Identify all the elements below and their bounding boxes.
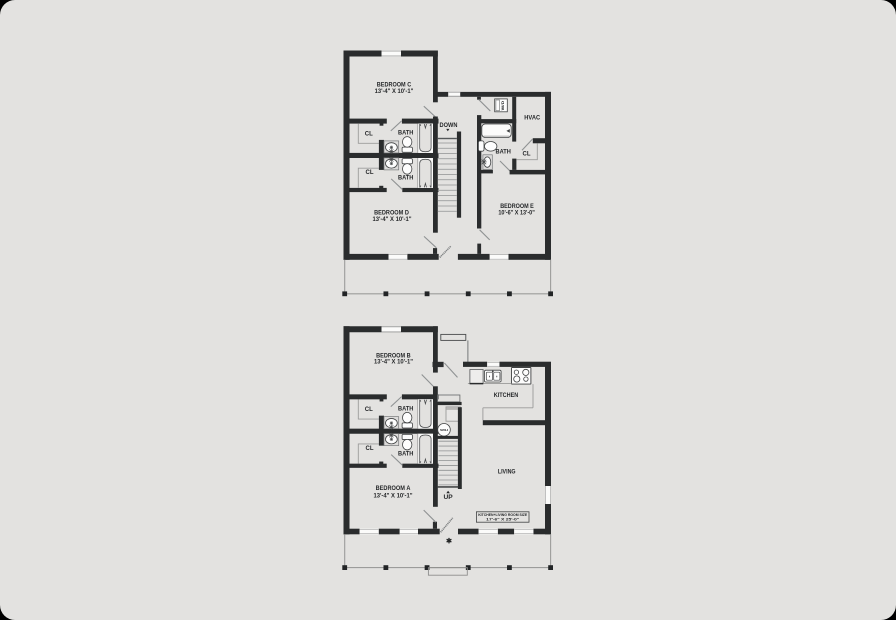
svg-text:BATH: BATH: [398, 131, 413, 137]
svg-text:KITCHEN: KITCHEN: [494, 392, 519, 399]
svg-text:BEDROOM A: BEDROOM A: [376, 485, 411, 492]
svg-text:HVAC: HVAC: [524, 116, 540, 122]
svg-text:BATH: BATH: [398, 176, 413, 182]
svg-text:CL: CL: [366, 446, 374, 452]
svg-text:10'-6" X 13'-0": 10'-6" X 13'-0": [498, 209, 535, 216]
svg-text:UP: UP: [444, 495, 453, 501]
svg-text:CL: CL: [365, 407, 373, 413]
svg-text:LIVING: LIVING: [498, 468, 516, 475]
svg-text:CL: CL: [523, 151, 531, 157]
svg-text:CL: CL: [365, 131, 373, 137]
svg-text:W/H: W/H: [440, 428, 449, 432]
svg-text:BATH: BATH: [398, 406, 413, 412]
svg-text:CL: CL: [366, 170, 374, 176]
svg-text:KITCHEN+LIVING ROOM SIZE: KITCHEN+LIVING ROOM SIZE: [478, 513, 528, 517]
svg-text:BATH: BATH: [496, 150, 511, 156]
svg-text:W/D: W/D: [501, 101, 505, 111]
svg-text:13'-4" X 10'-1": 13'-4" X 10'-1": [373, 492, 412, 499]
svg-text:BATH: BATH: [398, 451, 413, 457]
svg-text:13'-4" X 10'-1": 13'-4" X 10'-1": [375, 88, 414, 95]
svg-text:17'-6" X 25'-0": 17'-6" X 25'-0": [486, 518, 519, 522]
svg-text:13'-4" X 10'-1": 13'-4" X 10'-1": [372, 216, 411, 223]
svg-text:DOWN: DOWN: [440, 123, 458, 129]
svg-text:13'-4" X 10'-1": 13'-4" X 10'-1": [374, 359, 413, 366]
